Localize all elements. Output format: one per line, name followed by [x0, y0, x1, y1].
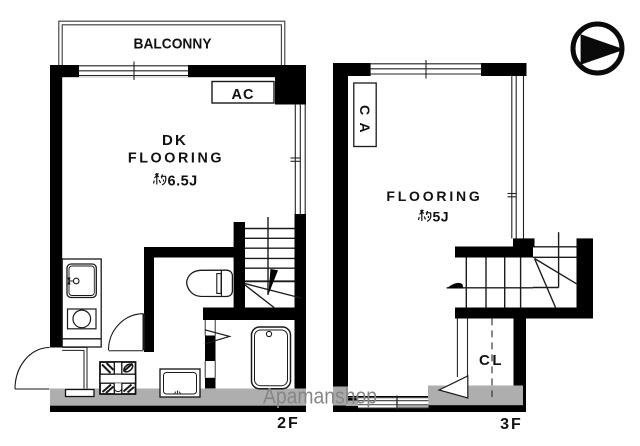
svg-text:BALCONNY: BALCONNY	[134, 35, 212, 52]
svg-text:A: A	[357, 123, 373, 133]
svg-text:AC: AC	[232, 87, 255, 103]
svg-text:C: C	[357, 105, 373, 115]
svg-text:FLOORING: FLOORING	[386, 188, 482, 204]
svg-text:6.5J: 6.5J	[168, 174, 198, 190]
svg-text:Apamanshop: Apamanshop	[263, 384, 377, 409]
svg-text:DK: DK	[162, 132, 188, 149]
svg-text:5J: 5J	[433, 209, 450, 225]
svg-text:2F: 2F	[277, 415, 300, 432]
svg-text:FLOORING: FLOORING	[128, 151, 224, 167]
svg-text:3F: 3F	[500, 416, 523, 433]
